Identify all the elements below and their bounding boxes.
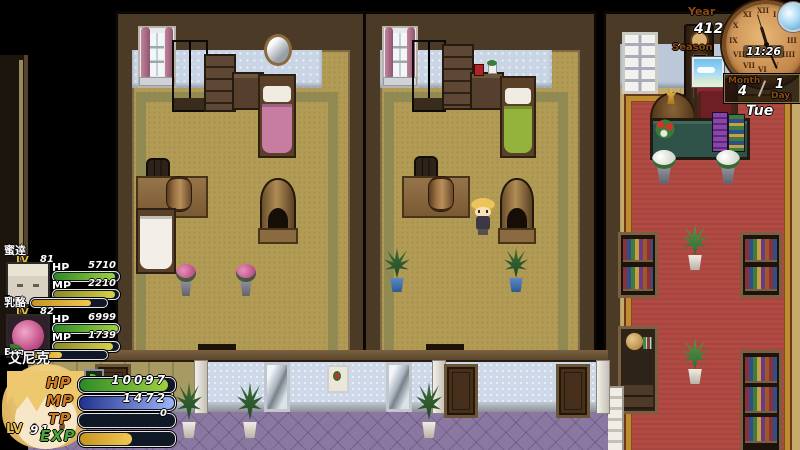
- white-flowers: [652, 150, 676, 169]
- window-glass: [150, 33, 165, 76]
- book-row: [745, 239, 777, 261]
- white-pot: [687, 369, 703, 384]
- pink-flowers: [236, 264, 256, 282]
- room2-nightstand: [470, 72, 504, 110]
- bookshelf-lower-right: [740, 350, 782, 450]
- room1-round-mirror: [264, 34, 292, 66]
- clock-numeral: VII: [743, 61, 755, 70]
- corridor-door-3[interactable]: [556, 364, 590, 418]
- book-row: [745, 417, 777, 441]
- clock-numeral: III: [787, 36, 797, 45]
- white-flowers: [716, 150, 740, 169]
- bookshelf-upper-left: [618, 232, 658, 298]
- year-value: 412: [694, 21, 723, 37]
- bookshelf-upper-right: [740, 232, 782, 298]
- clock-second-hand: [756, 14, 766, 44]
- player-tp-label: TP: [48, 410, 71, 428]
- door-panel: [564, 372, 582, 410]
- sprite-eye-left: [478, 210, 480, 213]
- player-exp-bar: [78, 431, 176, 447]
- pink-flowers: [176, 264, 196, 282]
- white-pot: [421, 422, 437, 438]
- blanket-green: [504, 106, 532, 153]
- book-row: [623, 239, 653, 261]
- room2-wardrobe: [412, 40, 446, 112]
- book-row: [745, 267, 777, 289]
- clock-numeral: I: [773, 10, 776, 19]
- book-row: [745, 357, 777, 381]
- player-lv-label: LV: [6, 422, 23, 437]
- player-mp-label: MP: [46, 392, 74, 410]
- room3-flower-stand-2: [714, 150, 742, 184]
- room1-window: [138, 26, 176, 88]
- window-glass: [393, 33, 407, 76]
- corridor-mirror-1: [264, 362, 290, 412]
- palm-leaves: [682, 338, 708, 370]
- player-tp-value: 0: [160, 408, 167, 419]
- digital-time: 11:26: [743, 45, 784, 58]
- room1-chest-pedestal: [258, 228, 298, 244]
- member1-mp-value: 2210: [70, 278, 116, 289]
- room1-desk-barrel: [166, 176, 192, 212]
- sprite-body: [476, 216, 490, 230]
- day-label: Day: [771, 91, 790, 101]
- player-exp-label: EXP: [40, 427, 76, 445]
- globe: [625, 332, 644, 351]
- weather-icon: [778, 2, 800, 32]
- white-pot: [242, 422, 258, 438]
- pillow: [505, 88, 531, 104]
- corridor-plant-3: [237, 382, 263, 438]
- blanket-pink: [262, 104, 292, 153]
- cloud-icon: [697, 67, 715, 73]
- season-label: Season: [672, 42, 713, 53]
- room3-palm-2: [682, 338, 708, 384]
- corridor-mirror-2: [386, 362, 412, 412]
- corridor-plant-4: [416, 382, 442, 438]
- clock-numeral: IX: [729, 36, 738, 45]
- player-character-sprite[interactable]: [470, 198, 496, 238]
- sheet-white: [140, 216, 172, 269]
- player-mp-value: 1472: [76, 391, 168, 405]
- agave-leaves: [416, 382, 442, 420]
- pilaster: [596, 360, 610, 414]
- plant-leaves: [384, 248, 410, 278]
- plant-leaves: [504, 248, 528, 278]
- avatar-hair: [8, 264, 48, 276]
- room2-red-book: [474, 64, 484, 76]
- player-hud: 艾尼克 HP 10097 MP 1472 TP 0 LV 91 EXP: [0, 344, 185, 450]
- game-screen: 2 蜜逹 LV 81 HP 5710 MP 2210: [0, 0, 800, 450]
- room3-palm-1: [682, 224, 708, 270]
- globe-cabinet: [618, 326, 658, 414]
- book-row: [623, 267, 653, 289]
- pillow: [263, 86, 291, 102]
- room1-wardrobe: [172, 40, 208, 112]
- member2-hp-value: 6999: [70, 312, 116, 323]
- clock-numeral: X: [733, 21, 738, 30]
- season-image: [692, 57, 724, 87]
- room2-plant-2: [504, 248, 528, 292]
- blue-pot: [508, 278, 524, 292]
- player-hp-value: 10097: [76, 373, 168, 387]
- member1-hp-value: 5710: [70, 260, 116, 271]
- member2-mp-value: 1739: [70, 330, 116, 341]
- corridor-door-2[interactable]: [444, 364, 478, 418]
- avatar-eye-right: [33, 284, 39, 287]
- corridor-picture: [327, 365, 349, 393]
- door-panel: [452, 372, 470, 410]
- room2-chest-pedestal: [498, 228, 536, 244]
- room3-flower-stand-1: [650, 150, 678, 184]
- clock-numeral: VI: [758, 65, 767, 74]
- room1-bed-pink: [258, 74, 296, 158]
- room2-desk-barrel: [428, 176, 454, 212]
- book-row: [745, 387, 777, 411]
- sprite-eye-right: [486, 210, 488, 213]
- exp-bar-fill: [80, 433, 132, 445]
- clock-numeral: XI: [743, 10, 752, 19]
- room2-white-plant: [488, 64, 497, 74]
- blue-pot: [389, 278, 405, 292]
- plant-leaves: [487, 60, 497, 66]
- player-hp-label: HP: [46, 374, 72, 392]
- weekday-value: Tue: [746, 103, 773, 119]
- room2-bed-green: [500, 76, 536, 158]
- room3-barred-window: [622, 32, 658, 94]
- window-sill: [139, 77, 176, 86]
- month-day-panel: Month 4 1 Day: [724, 74, 800, 103]
- year-label: Year: [688, 5, 715, 18]
- month-value: 4: [738, 84, 747, 99]
- room1-flower-stand-2: [234, 264, 258, 296]
- palm-leaves: [682, 224, 708, 256]
- agave-leaves: [237, 382, 263, 420]
- room2-plant-1: [384, 248, 410, 292]
- avatar-eye-left: [17, 284, 23, 287]
- curtain-left: [385, 27, 393, 80]
- room1-flower-stand-1: [174, 264, 198, 296]
- sprite-legs: [478, 229, 488, 235]
- room1-bed-white: [136, 208, 176, 274]
- white-pot: [687, 255, 703, 270]
- clock-numeral: XII: [757, 6, 769, 15]
- flower-art: [333, 371, 341, 381]
- day-value: 1: [775, 77, 784, 92]
- cabinet-drawers: [623, 385, 653, 409]
- curtain-left: [141, 27, 150, 80]
- bottles: [643, 337, 652, 349]
